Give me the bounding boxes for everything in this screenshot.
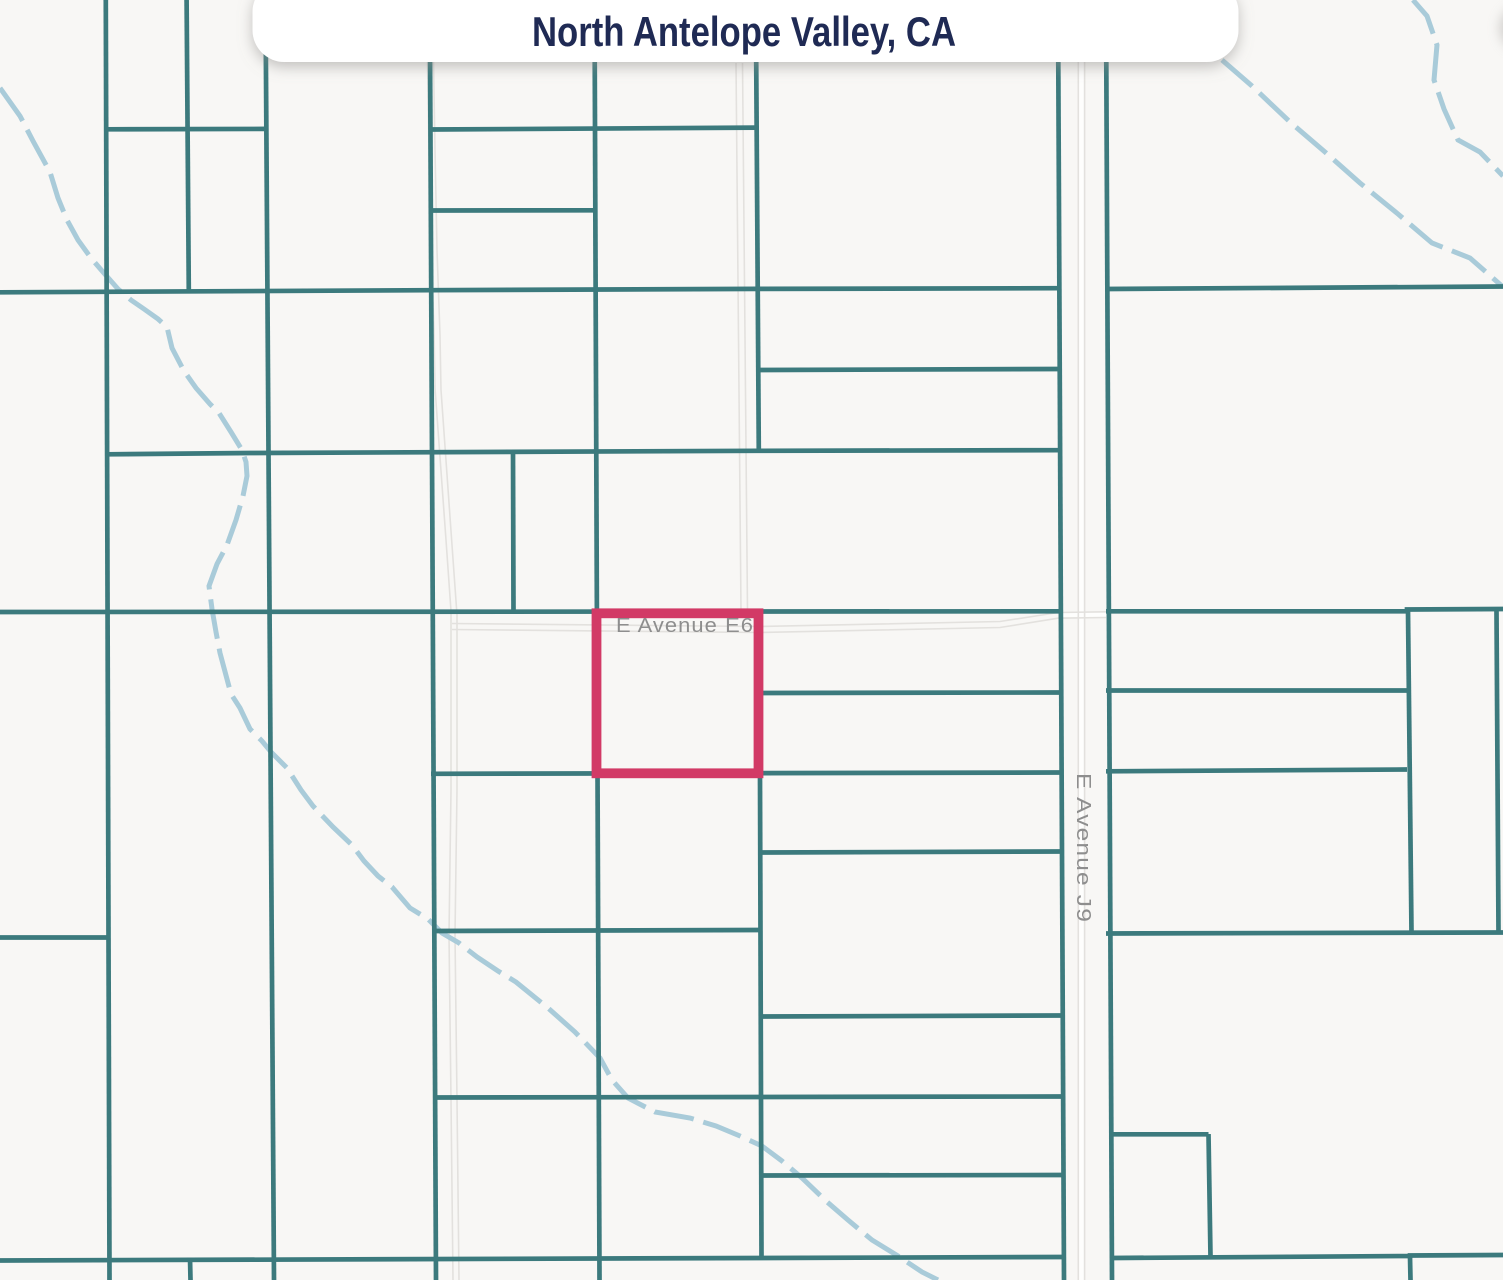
svg-text:E Avenue E6: E Avenue E6: [616, 614, 754, 637]
svg-text:E Avenue J9: E Avenue J9: [1072, 773, 1095, 923]
svg-text:North Antelope Valley, CA: North Antelope Valley, CA: [532, 8, 956, 55]
